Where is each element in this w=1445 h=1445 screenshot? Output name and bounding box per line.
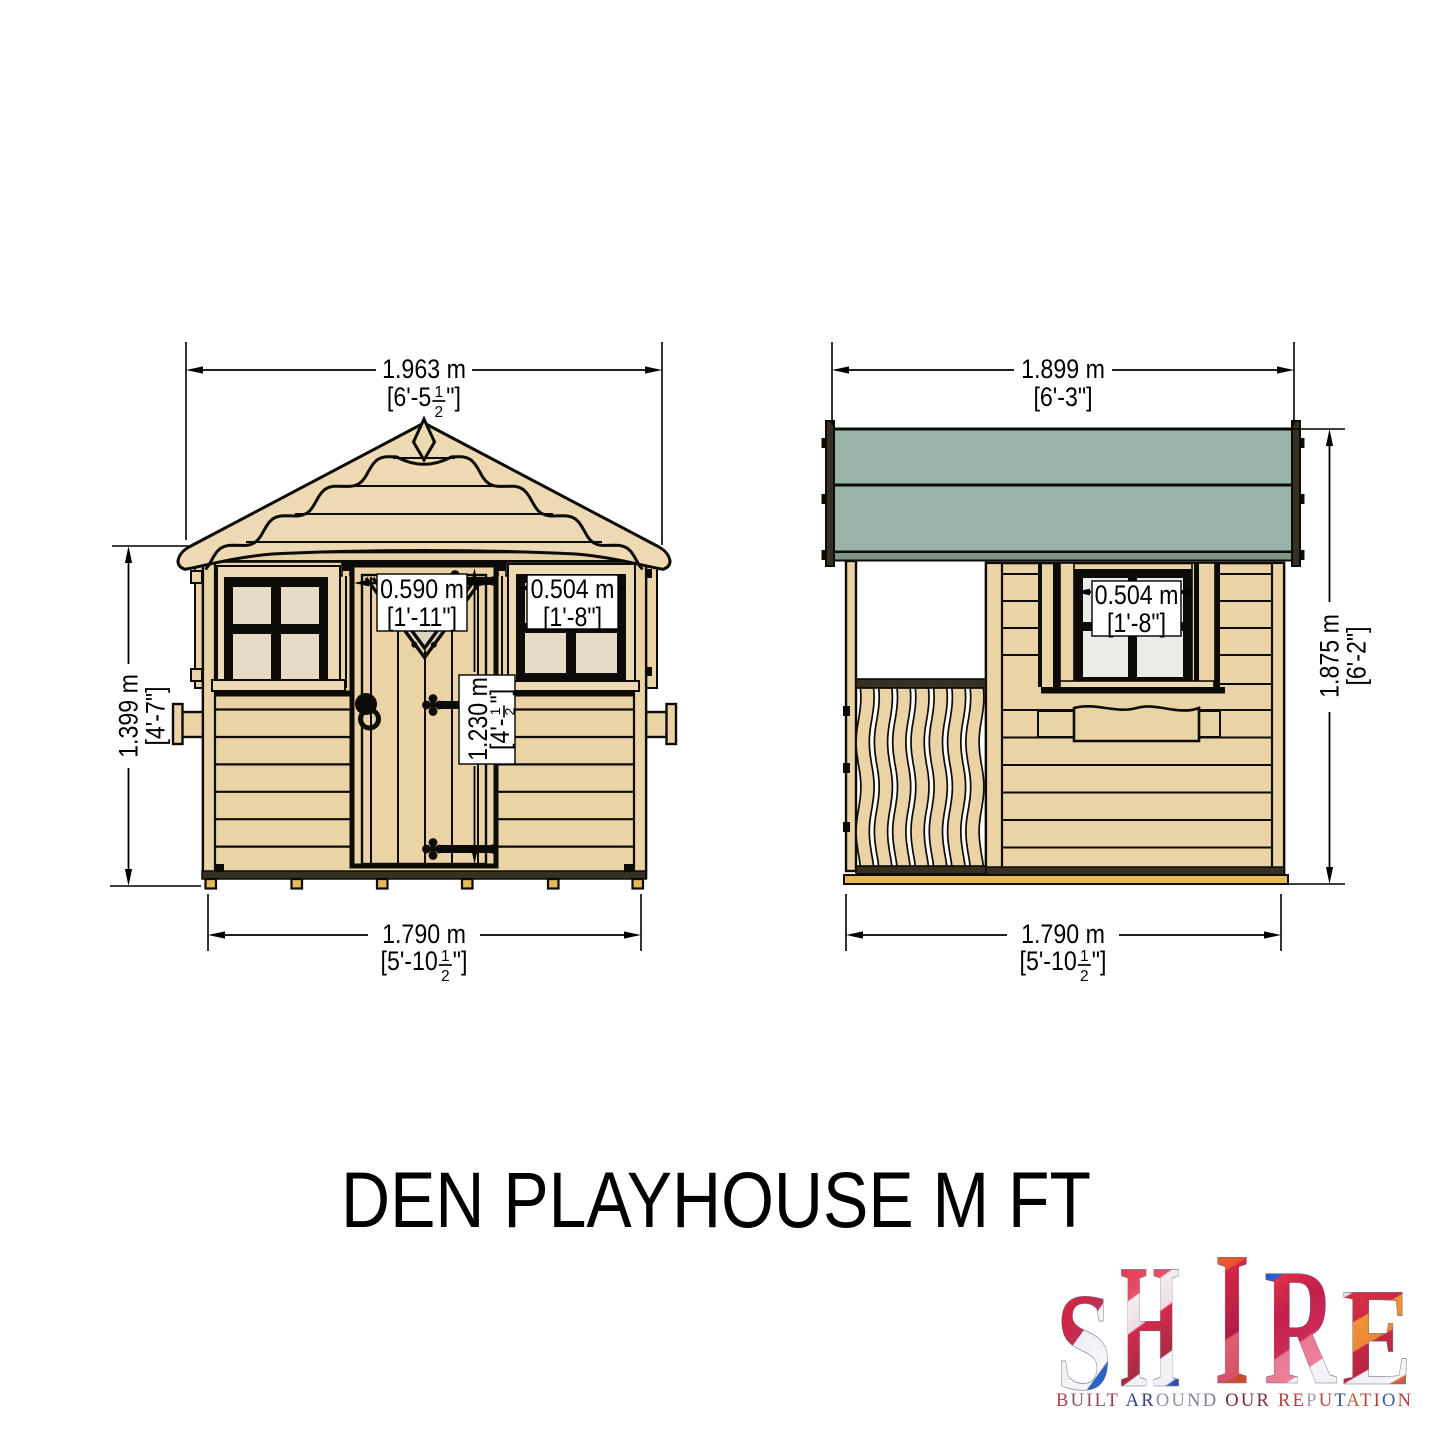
svg-text:[4'-7"]: [4'-7"] [141, 686, 171, 745]
svg-text:1.899 m: 1.899 m [1021, 354, 1105, 384]
svg-text:"]: "] [485, 689, 515, 704]
svg-text:[5'-10: [5'-10 [1020, 946, 1077, 976]
svg-text:1.790 m: 1.790 m [1021, 919, 1105, 949]
svg-text:[6'-5: [6'-5 [387, 382, 431, 412]
svg-text:[1'-11"]: [1'-11"] [387, 602, 457, 632]
svg-text:[6'-3"]: [6'-3"] [1033, 382, 1092, 412]
svg-text:[4'-: [4'- [485, 719, 515, 751]
svg-text:0.504 m: 0.504 m [1095, 580, 1179, 610]
svg-text:1: 1 [441, 948, 450, 965]
svg-text:2: 2 [1080, 968, 1089, 985]
svg-text:0.590 m: 0.590 m [380, 574, 464, 604]
svg-text:2: 2 [441, 968, 450, 985]
svg-text:1.399 m: 1.399 m [114, 674, 144, 758]
svg-text:2: 2 [502, 707, 518, 715]
svg-text:"]: "] [1092, 946, 1107, 976]
svg-text:[5'-10: [5'-10 [381, 946, 438, 976]
svg-text:BUILT AROUND OUR REPUTATION: BUILT AROUND OUR REPUTATION [1056, 1391, 1413, 1411]
svg-text:[1'-8"]: [1'-8"] [1107, 608, 1166, 638]
svg-text:1.875 m: 1.875 m [1315, 614, 1345, 698]
svg-text:1: 1 [1080, 948, 1089, 965]
svg-text:1.963 m: 1.963 m [382, 354, 466, 384]
svg-text:"]: "] [446, 382, 461, 412]
svg-text:1.790 m: 1.790 m [382, 919, 466, 949]
svg-text:[1'-8"]: [1'-8"] [543, 602, 602, 632]
svg-text:"]: "] [453, 946, 468, 976]
svg-text:0.504 m: 0.504 m [531, 574, 615, 604]
svg-text:2: 2 [434, 404, 443, 421]
svg-text:[6'-2"]: [6'-2"] [1342, 626, 1372, 685]
svg-text:1: 1 [434, 384, 443, 401]
svg-text:DEN PLAYHOUSE M FT: DEN PLAYHOUSE M FT [341, 1155, 1091, 1244]
